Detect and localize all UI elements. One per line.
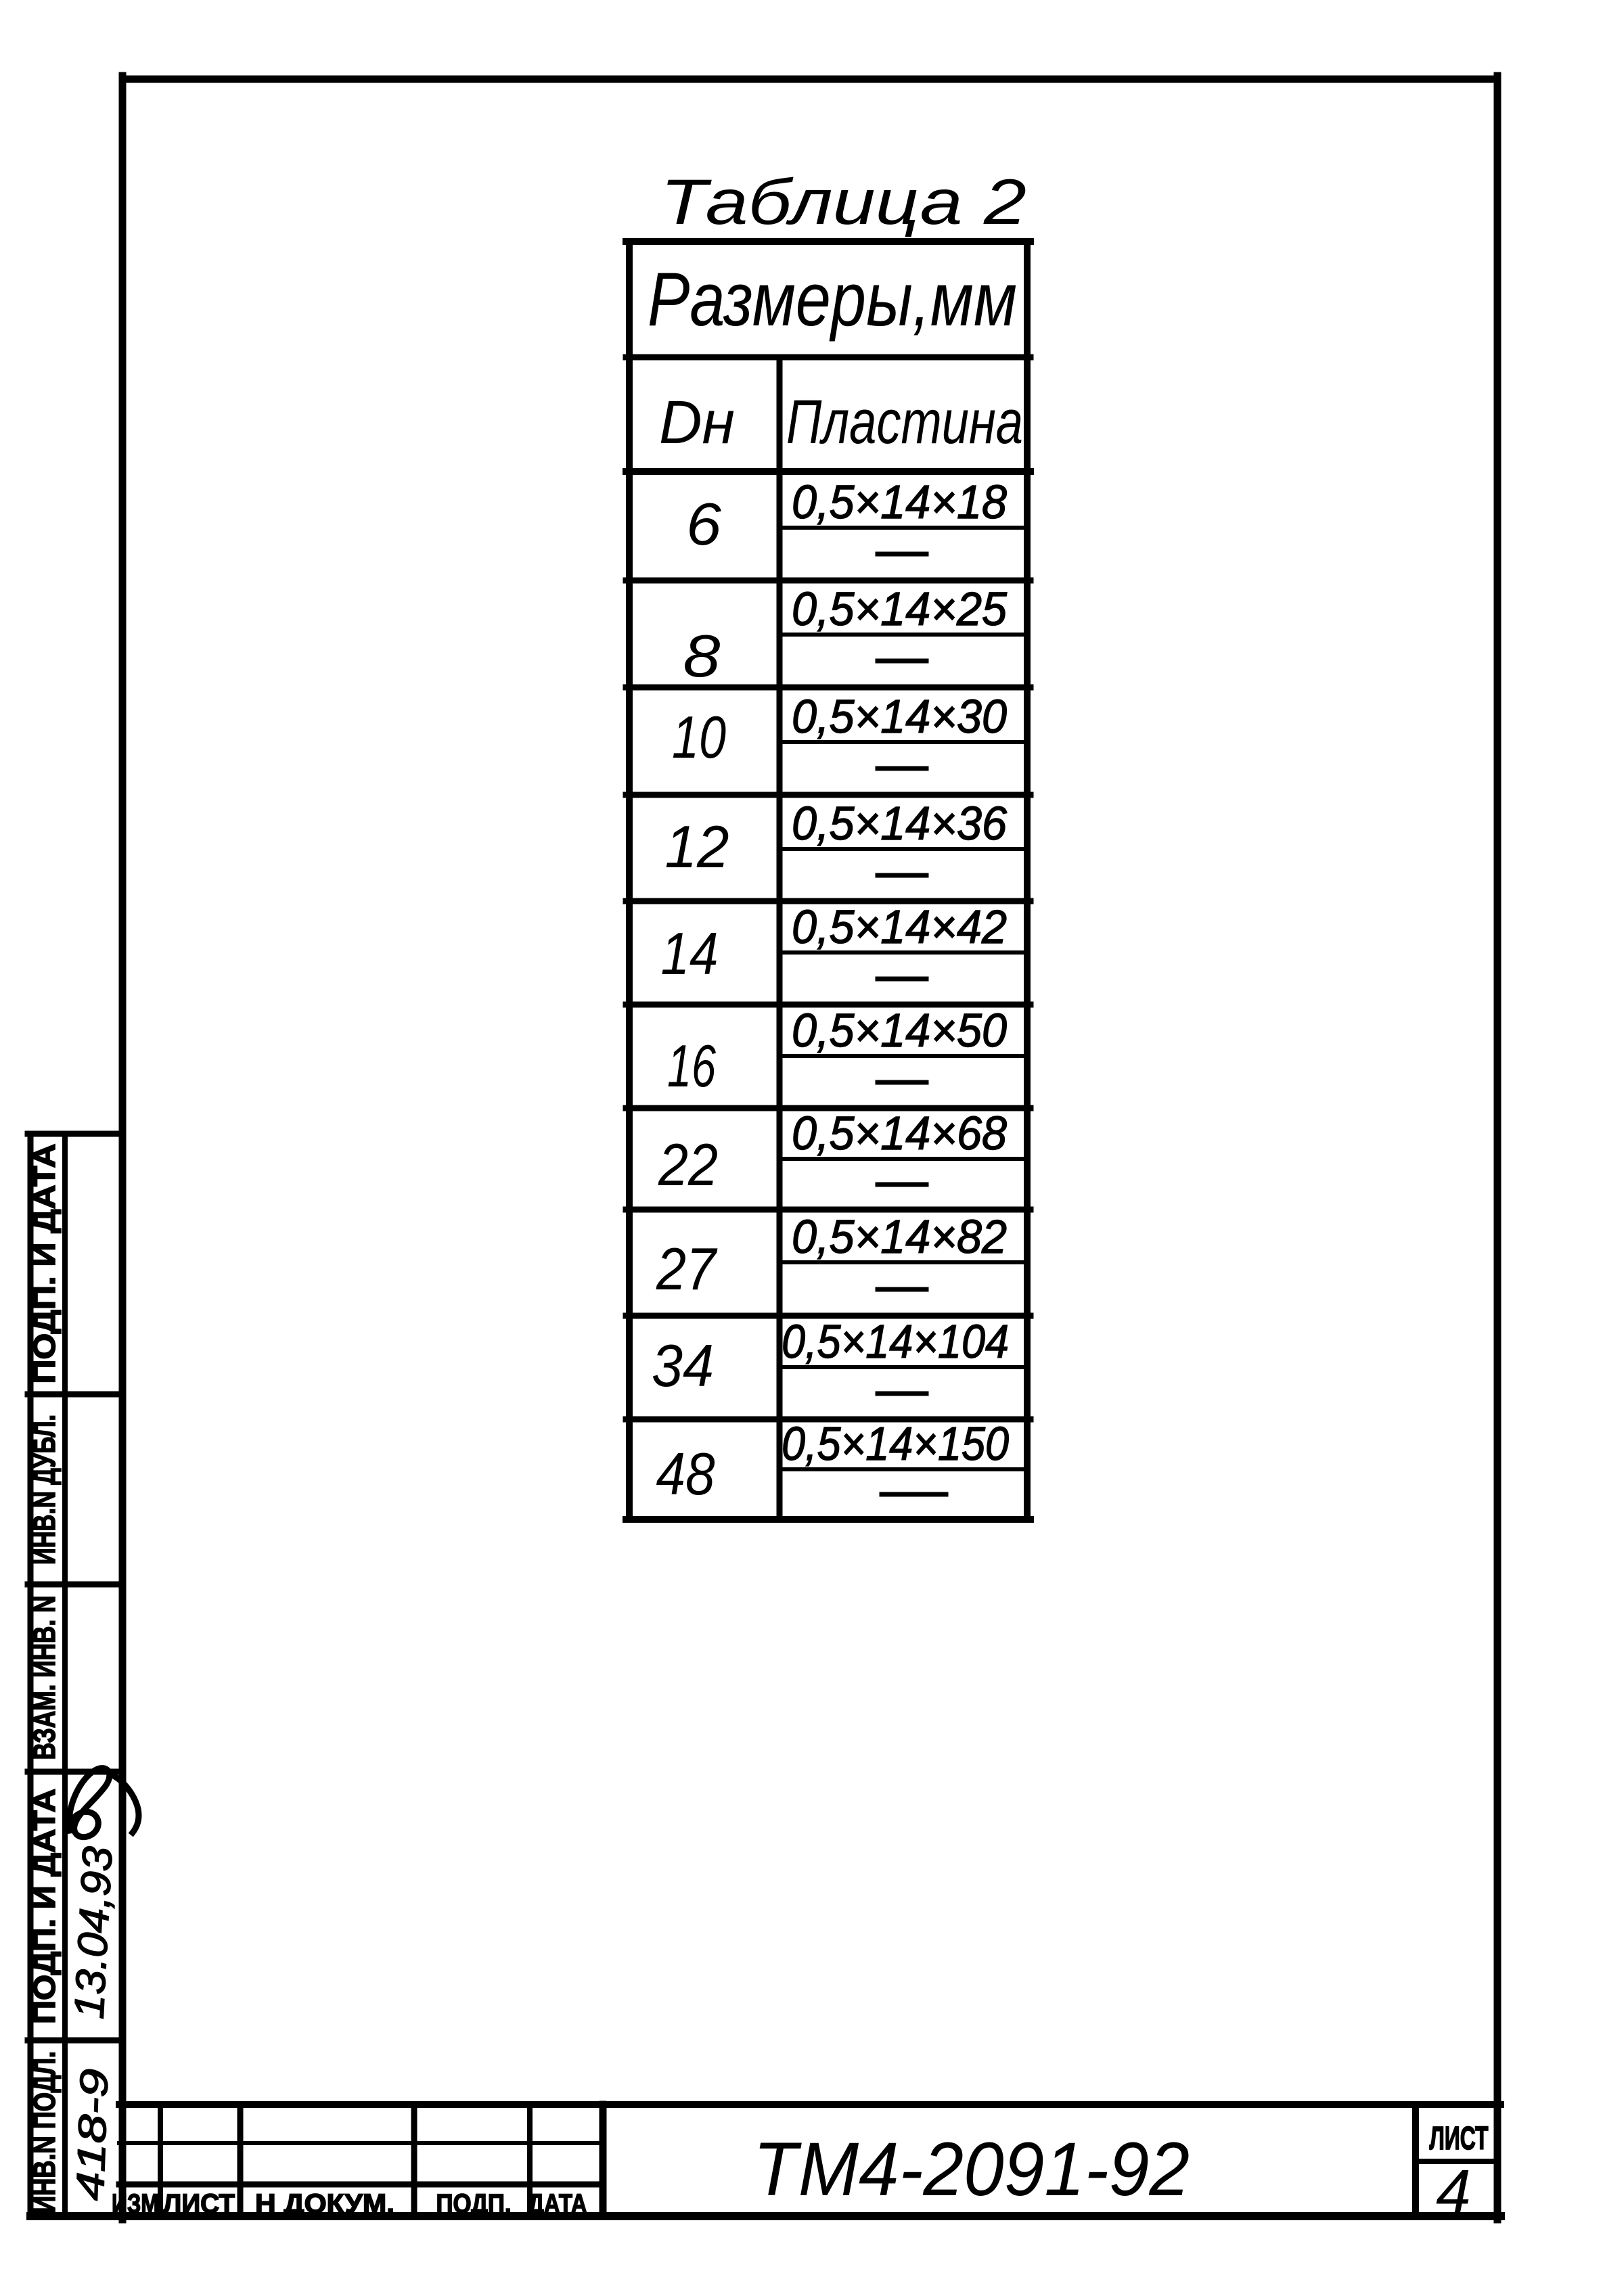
svg-text:0,5×14×25: 0,5×14×25 [792,582,1008,635]
svg-text:ИНВ.N ПОДЛ.: ИНВ.N ПОДЛ. [27,2051,62,2213]
svg-text:48: 48 [656,1440,715,1507]
svg-text:ДАТА: ДАТА [528,2189,587,2219]
svg-text:Пластина: Пластина [786,388,1023,457]
svg-text:ПОДП. И ДАТА: ПОДП. И ДАТА [27,1789,62,2024]
svg-text:Dн: Dн [659,389,735,457]
svg-text:16: 16 [667,1032,716,1099]
svg-text:14: 14 [661,920,719,987]
svg-text:ТМ4-2091-92: ТМ4-2091-92 [753,2127,1190,2211]
svg-text:ПОДП.: ПОДП. [436,2189,512,2219]
svg-text:0,5×14×18: 0,5×14×18 [792,476,1007,528]
svg-text:22: 22 [658,1131,718,1198]
svg-text:0,5×14×104: 0,5×14×104 [782,1315,1009,1368]
svg-text:0,5×14×68: 0,5×14×68 [792,1107,1007,1160]
svg-text:ИЗМ: ИЗМ [112,2189,159,2219]
svg-text:4: 4 [1436,2157,1471,2227]
svg-text:Н ДОКУМ.: Н ДОКУМ. [255,2189,394,2219]
svg-text:13.04,93: 13.04,93 [66,1845,121,2020]
svg-text:0,5×14×150: 0,5×14×150 [782,1417,1009,1470]
svg-text:6: 6 [686,490,721,557]
svg-text:10: 10 [672,704,726,771]
svg-text:0,5×14×36: 0,5×14×36 [792,797,1007,850]
svg-text:ПОДП. И ДАТА: ПОДП. И ДАТА [27,1144,62,1384]
svg-text:418-9: 418-9 [68,2068,117,2201]
svg-text:Размеры,мм: Размеры,мм [648,257,1017,342]
svg-text:0,5×14×82: 0,5×14×82 [792,1210,1007,1263]
svg-text:0,5×14×50: 0,5×14×50 [792,1004,1007,1057]
svg-text:12: 12 [665,813,729,880]
svg-text:27: 27 [656,1235,718,1302]
svg-text:ИНВ.N ДУБЛ.: ИНВ.N ДУБЛ. [27,1415,62,1565]
svg-text:8: 8 [683,622,721,689]
svg-text:0,5×14×30: 0,5×14×30 [792,690,1007,743]
svg-text:34: 34 [652,1332,714,1399]
svg-text:0,5×14×42: 0,5×14×42 [792,900,1007,953]
svg-text:ЛИСТ: ЛИСТ [163,2189,235,2219]
svg-text:ЛИСТ: ЛИСТ [1430,2121,1489,2157]
svg-text:ВЗАМ. ИНВ. N: ВЗАМ. ИНВ. N [27,1596,62,1760]
svg-text:Таблица 2: Таблица 2 [660,166,1026,238]
